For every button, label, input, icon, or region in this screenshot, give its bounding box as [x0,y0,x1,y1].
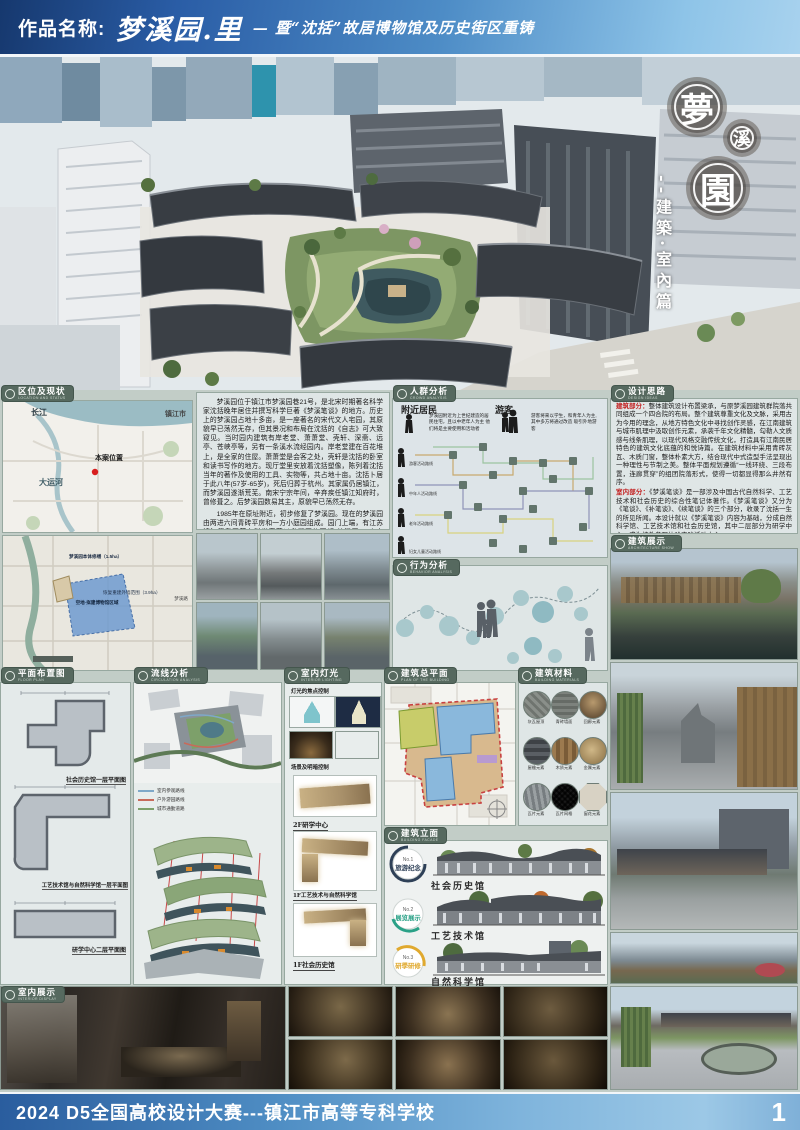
svg-text:No.3: No.3 [403,955,414,961]
section-dot-icon [288,671,298,681]
facade-elevation-3 [429,937,605,977]
plans-panel: 社会历史馆一层平面图 工艺技术馆与自然科学馆一层平面图 研学中心二层平面图 [0,682,131,985]
route-label-4: 妇女儿童活动路线 [409,549,441,555]
section-header-behavior: 行为分析BEHAVIOR ANALYSIS [394,560,459,575]
material-swatch-9 [579,783,607,811]
section-dot-icon [388,671,398,681]
material-label: 金属元素 [577,765,607,771]
section-header-lighting: 室内灯光INTERIOR LIGHTING [285,668,349,683]
floor-plans-drawing [1,683,130,984]
material-swatch-7 [523,783,551,811]
mural-wall [7,995,77,1083]
section-dot-icon [5,990,15,1000]
work-subtitle: — 暨“沈括”故居博物馆及历史街区重铸 [253,17,534,38]
material-swatch-1 [523,691,551,719]
lighting-item1: 灯光的焦点控制 [291,687,329,695]
light-cone [352,700,366,724]
street-photo [196,602,258,670]
lit-plan-2f [293,775,377,817]
materials-panel: 灰瓦屋顶 青砖墙面 回廊元素 屋檐元素 木质元素 金属元素 瓦片元素 瓦片网格 … [518,682,608,826]
design-text: 建筑部分：整体建筑设计布置梁承，与原梦溪园建筑群院落共同组成一个四合院的布局。整… [610,398,798,534]
badge-yuan: 園 [690,160,746,216]
red-flowers [755,963,785,977]
render-street [610,792,798,930]
colonnade [621,577,741,603]
light-diagram-1 [289,696,335,728]
facade-elevation-1 [429,843,605,877]
siteplan-label-repair: 梦溪园本体修缮（1.5ha） [69,554,122,560]
master-plan [384,682,516,826]
material-label: 窗花元素 [577,811,607,817]
route-label-1: 游客活动路线 [409,461,433,467]
corridor-photo [289,731,333,759]
top-banner: 作品名称: 梦溪园.里 — 暨“沈括”故居博物馆及历史街区重铸 [0,0,800,57]
section-header-interior: 室内展示INTERIOR DISPLAY [2,987,64,1002]
route-label-2: 中年人活动路线 [409,491,437,497]
svg-text:旅游纪念: 旅游纪念 [395,863,421,872]
section-dot-icon [388,831,398,841]
street-photo-grid [196,533,390,671]
aerial-render: 夢 溪 園 --建築·室內篇 [0,57,800,390]
facade-panel: No.1 旅游纪念 社会历史馆 No.2 展览展示 工艺技术馆 [384,840,608,985]
section-dot-icon [138,671,148,681]
siteplan-label-road: 梦溪路 [174,596,188,602]
material-label: 屋檐元素 [521,765,551,771]
section-dot-icon [615,389,625,399]
section-dot-icon [5,671,15,681]
material-swatch-2 [551,691,579,719]
interior-grid [288,986,608,1090]
circulation-legend: 室内参观路线 户外游园路线 城市通勤道路 [138,785,185,812]
render-residential [610,932,798,984]
material-label: 木质元素 [549,765,579,771]
material-swatch-6 [579,737,607,765]
corridor-photo [335,731,379,759]
material-swatch-8 [551,783,579,811]
behavior-panel [392,565,608,671]
map-label-river: 长江 [31,407,47,418]
exploded-axon [134,823,281,983]
lit-plan-1f-b [293,903,377,957]
intro-text: 梦溪园位于镇江市梦溪园巷21号，是北宋时期著名科学家沈括晚年居住并撰写科学巨著《… [196,392,390,530]
activity-icons [444,443,593,553]
svg-text:No.2: No.2 [403,907,414,913]
facade-badge-3: No.3 研學研修 [389,943,427,981]
section-dot-icon [615,539,625,549]
long-roof [617,849,767,875]
willow-tree [741,569,781,603]
interior-photo [288,986,393,1037]
city-map: 长江 镇江市 本案位置 大运河 [2,400,193,533]
plan-caption-3: 研学中心二层平面图 [72,945,126,955]
map-label-site: 本案位置 [95,453,123,463]
bamboo [617,693,643,783]
material-label: 青砖墙面 [549,719,579,725]
section-header-materials: 建筑材料BUILDING MATERIALS [519,668,586,683]
street-photo [324,533,390,600]
badge-meng: 夢 [671,81,723,133]
section-dot-icon [5,389,15,399]
lit-plan-label-2: 1F工艺技术与自然科学馆 [293,891,357,901]
svg-text:研學研修: 研學研修 [395,961,421,970]
section-dot-icon [397,389,407,399]
light-cone [304,701,320,723]
facade-elevation-2 [429,889,605,927]
poster-board: 作品名称: 梦溪园.里 — 暨“沈括”故居博物馆及历史街区重铸 [0,0,800,1130]
render-alley [610,662,798,790]
plan-caption-1: 社会历史馆一层平面图 [66,775,126,785]
street-photo [260,602,322,670]
work-title: 梦溪园.里 [115,8,242,47]
svg-text:展览展示: 展览展示 [395,913,421,922]
section-header-archshow: 建筑展示ARCHITECTURE SHOW [612,536,681,551]
floor-glow [121,1047,241,1077]
light-diagram-2 [335,696,381,728]
material-swatch-3 [579,691,607,719]
material-swatch-5 [551,737,579,765]
interior-photo [288,1039,393,1090]
badge-xi: 溪 [727,123,757,153]
render-courtyard-pond [610,548,798,660]
display-case [227,1001,261,1061]
arch-part-label: 建筑部分： [616,403,649,410]
hero-vertical-title: --建築·室內篇 [650,175,674,375]
material-label: 灰瓦屋顶 [521,719,551,725]
section-header-plans: 平面布置图FLOOR PLAN [2,668,73,683]
street-photo [196,533,258,600]
bottom-banner: 2024 D5全国高校设计大赛---镇江市高等专科学校 1 [0,1092,800,1130]
lit-plan-label-3: 1F社会历史馆 [293,959,335,971]
route-lines [415,447,593,541]
page-number: 1 [772,1097,786,1128]
siteplan-label-empty: 空地·拟建博物馆区域 [73,600,121,606]
lighting-item2: 场景及明暗控制 [291,763,329,771]
map-label-city: 镇江市 [165,409,186,419]
wavy-roof [661,1013,791,1027]
timber-facade [737,687,797,787]
lighting-panel: 灯光的焦点控制 场景及明暗控制 2F研学中心 1F工艺技术与自然科学馆 1F社会… [284,682,382,985]
material-swatch-4 [523,737,551,765]
section-header-design: 设计思路DESIGN IDEAS [612,386,673,401]
work-name-label: 作品名称: [18,14,105,41]
crowd-flow-diagram [393,399,607,557]
interior-photo [395,1039,500,1090]
crowd-panel: 附近居民 梦溪园附近为上世纪建造的居民住宅，且以中老年人为主 他们将是主要使用和… [392,398,608,558]
map-label-canal: 大运河 [39,477,63,488]
legend-city: 城市通勤道路 [138,806,185,812]
section-dot-icon [397,563,407,573]
svg-text:No.1: No.1 [403,857,414,863]
street-photo [324,602,390,670]
circulation-siteplan [134,683,281,783]
lit-plan-label-1: 2F研学中心 [293,819,328,831]
plan-caption-2: 工艺技术馆与自然科学馆一层平面图 [42,881,128,890]
street-photo [260,533,322,600]
site-plan-map: 梦溪园本体修缮（1.5ha） 恢复重建外墙范围（3.9ha） 空地·拟建博物馆区… [2,535,193,671]
material-label: 瓦片元素 [521,811,551,817]
siteplan-label-rebuild: 恢复重建外墙范围（3.9ha） [103,590,160,596]
section-header-siteplan: 建筑总平面PLAN OF THE BUILDING [385,668,456,683]
interior-photo [503,1039,608,1090]
material-label: 回廊元素 [577,719,607,725]
section-header-facade: 建筑立面BUILDING FACADE [385,828,446,843]
behavior-diagram [393,566,607,670]
legend-indoor: 室内参观路线 [138,788,185,794]
section-header-circulation: 流线分析CIRCULATION ANALYSIS [135,668,207,683]
section-dot-icon [522,671,532,681]
interior-photo [395,986,500,1037]
interior-photo [503,986,608,1037]
courtyard-day-render [610,986,798,1090]
lit-plan-1f-a [293,831,377,891]
gable-wall [681,703,715,763]
material-label: 瓦片网格 [549,811,579,817]
section-header-location: 区位及现状LOCATION AND STATUS [2,386,73,401]
round-lawn [701,1043,777,1075]
interior-part-label: 室内部分： [616,489,649,496]
route-label-3: 老年活动路线 [409,521,433,527]
facade-badge-2: No.2 展览展示 [389,895,427,933]
legend-garden: 户外游园路线 [138,797,185,803]
facade-badge-1: No.1 旅游纪念 [389,845,427,883]
bamboo [621,1007,651,1067]
competition-text: 2024 D5全国高校设计大赛---镇江市高等专科学校 [16,1099,435,1125]
section-header-crowd: 人群分析CROWD ANALYSIS [394,386,455,401]
circulation-panel: 室内参观路线 户外游园路线 城市通勤道路 [133,682,282,985]
person-icons [398,410,518,554]
courtyard-garden [285,224,481,348]
